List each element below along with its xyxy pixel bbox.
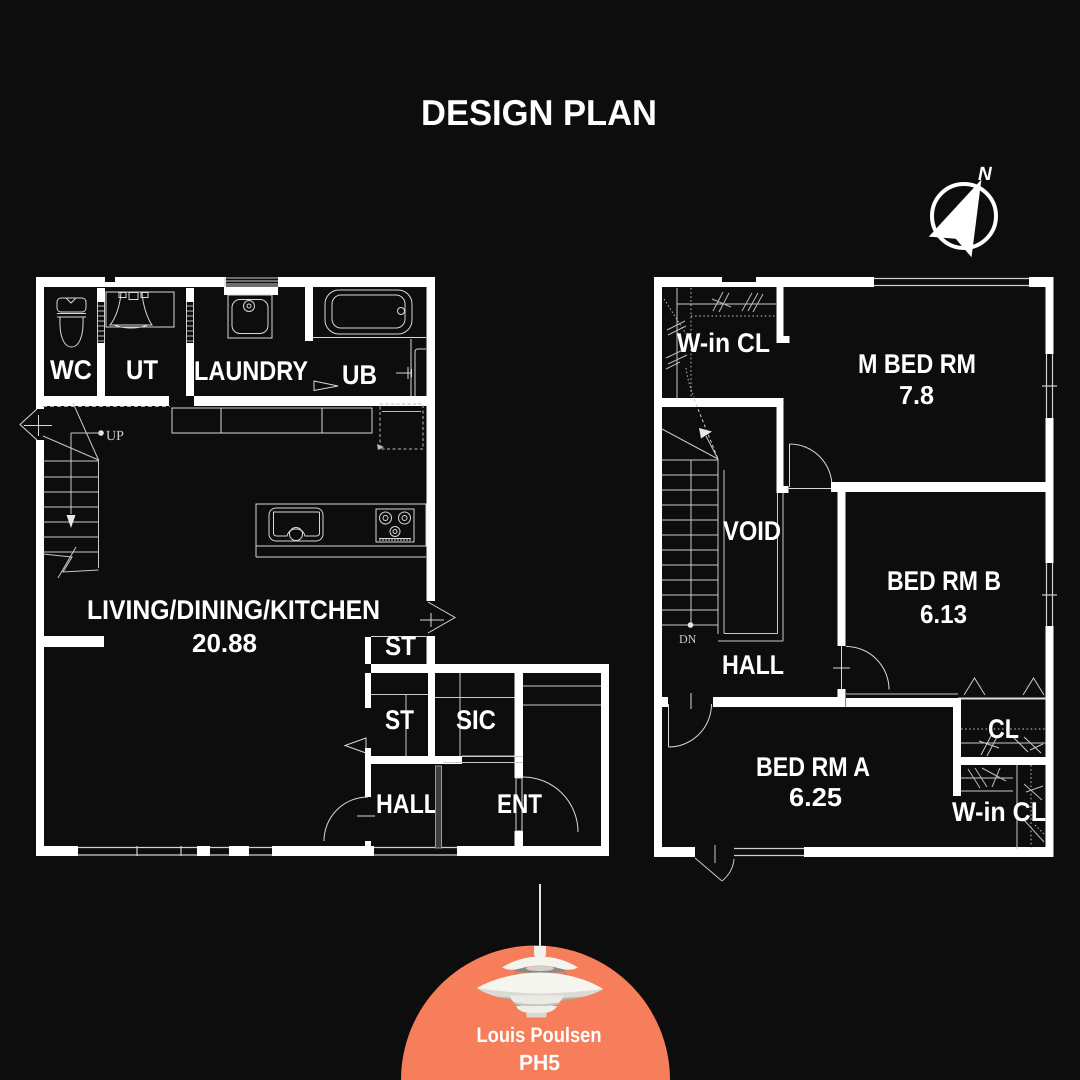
svg-text:6.13: 6.13 [920,599,967,629]
svg-text:VOID: VOID [723,516,781,546]
svg-text:7.8: 7.8 [899,380,934,410]
svg-text:W-in CL: W-in CL [952,797,1046,827]
svg-text:BED RM A: BED RM A [756,752,870,782]
svg-text:6.25: 6.25 [789,782,842,812]
svg-text:PH5: PH5 [519,1050,560,1075]
svg-text:ST: ST [385,631,416,661]
svg-text:20.88: 20.88 [192,628,257,658]
svg-text:Louis Poulsen: Louis Poulsen [477,1024,602,1047]
svg-text:WC: WC [50,355,92,385]
svg-text:LIVING/DINING/KITCHEN: LIVING/DINING/KITCHEN [87,595,380,625]
svg-text:M BED RM: M BED RM [858,349,976,379]
svg-text:UB: UB [342,360,377,390]
svg-text:HALL: HALL [376,789,438,819]
svg-text:ST: ST [385,705,414,735]
svg-text:LAUNDRY: LAUNDRY [194,356,308,386]
svg-text:N: N [978,164,993,185]
svg-text:CL: CL [988,714,1019,744]
svg-text:ENT: ENT [497,789,542,819]
svg-text:DN: DN [679,632,697,646]
svg-text:SIC: SIC [456,705,496,735]
svg-text:W-in CL: W-in CL [677,328,770,358]
svg-text:DESIGN PLAN: DESIGN PLAN [421,92,657,133]
svg-text:HALL: HALL [722,650,784,680]
svg-text:UT: UT [126,355,158,385]
svg-text:BED RM B: BED RM B [887,566,1001,596]
svg-text:UP: UP [106,429,124,444]
